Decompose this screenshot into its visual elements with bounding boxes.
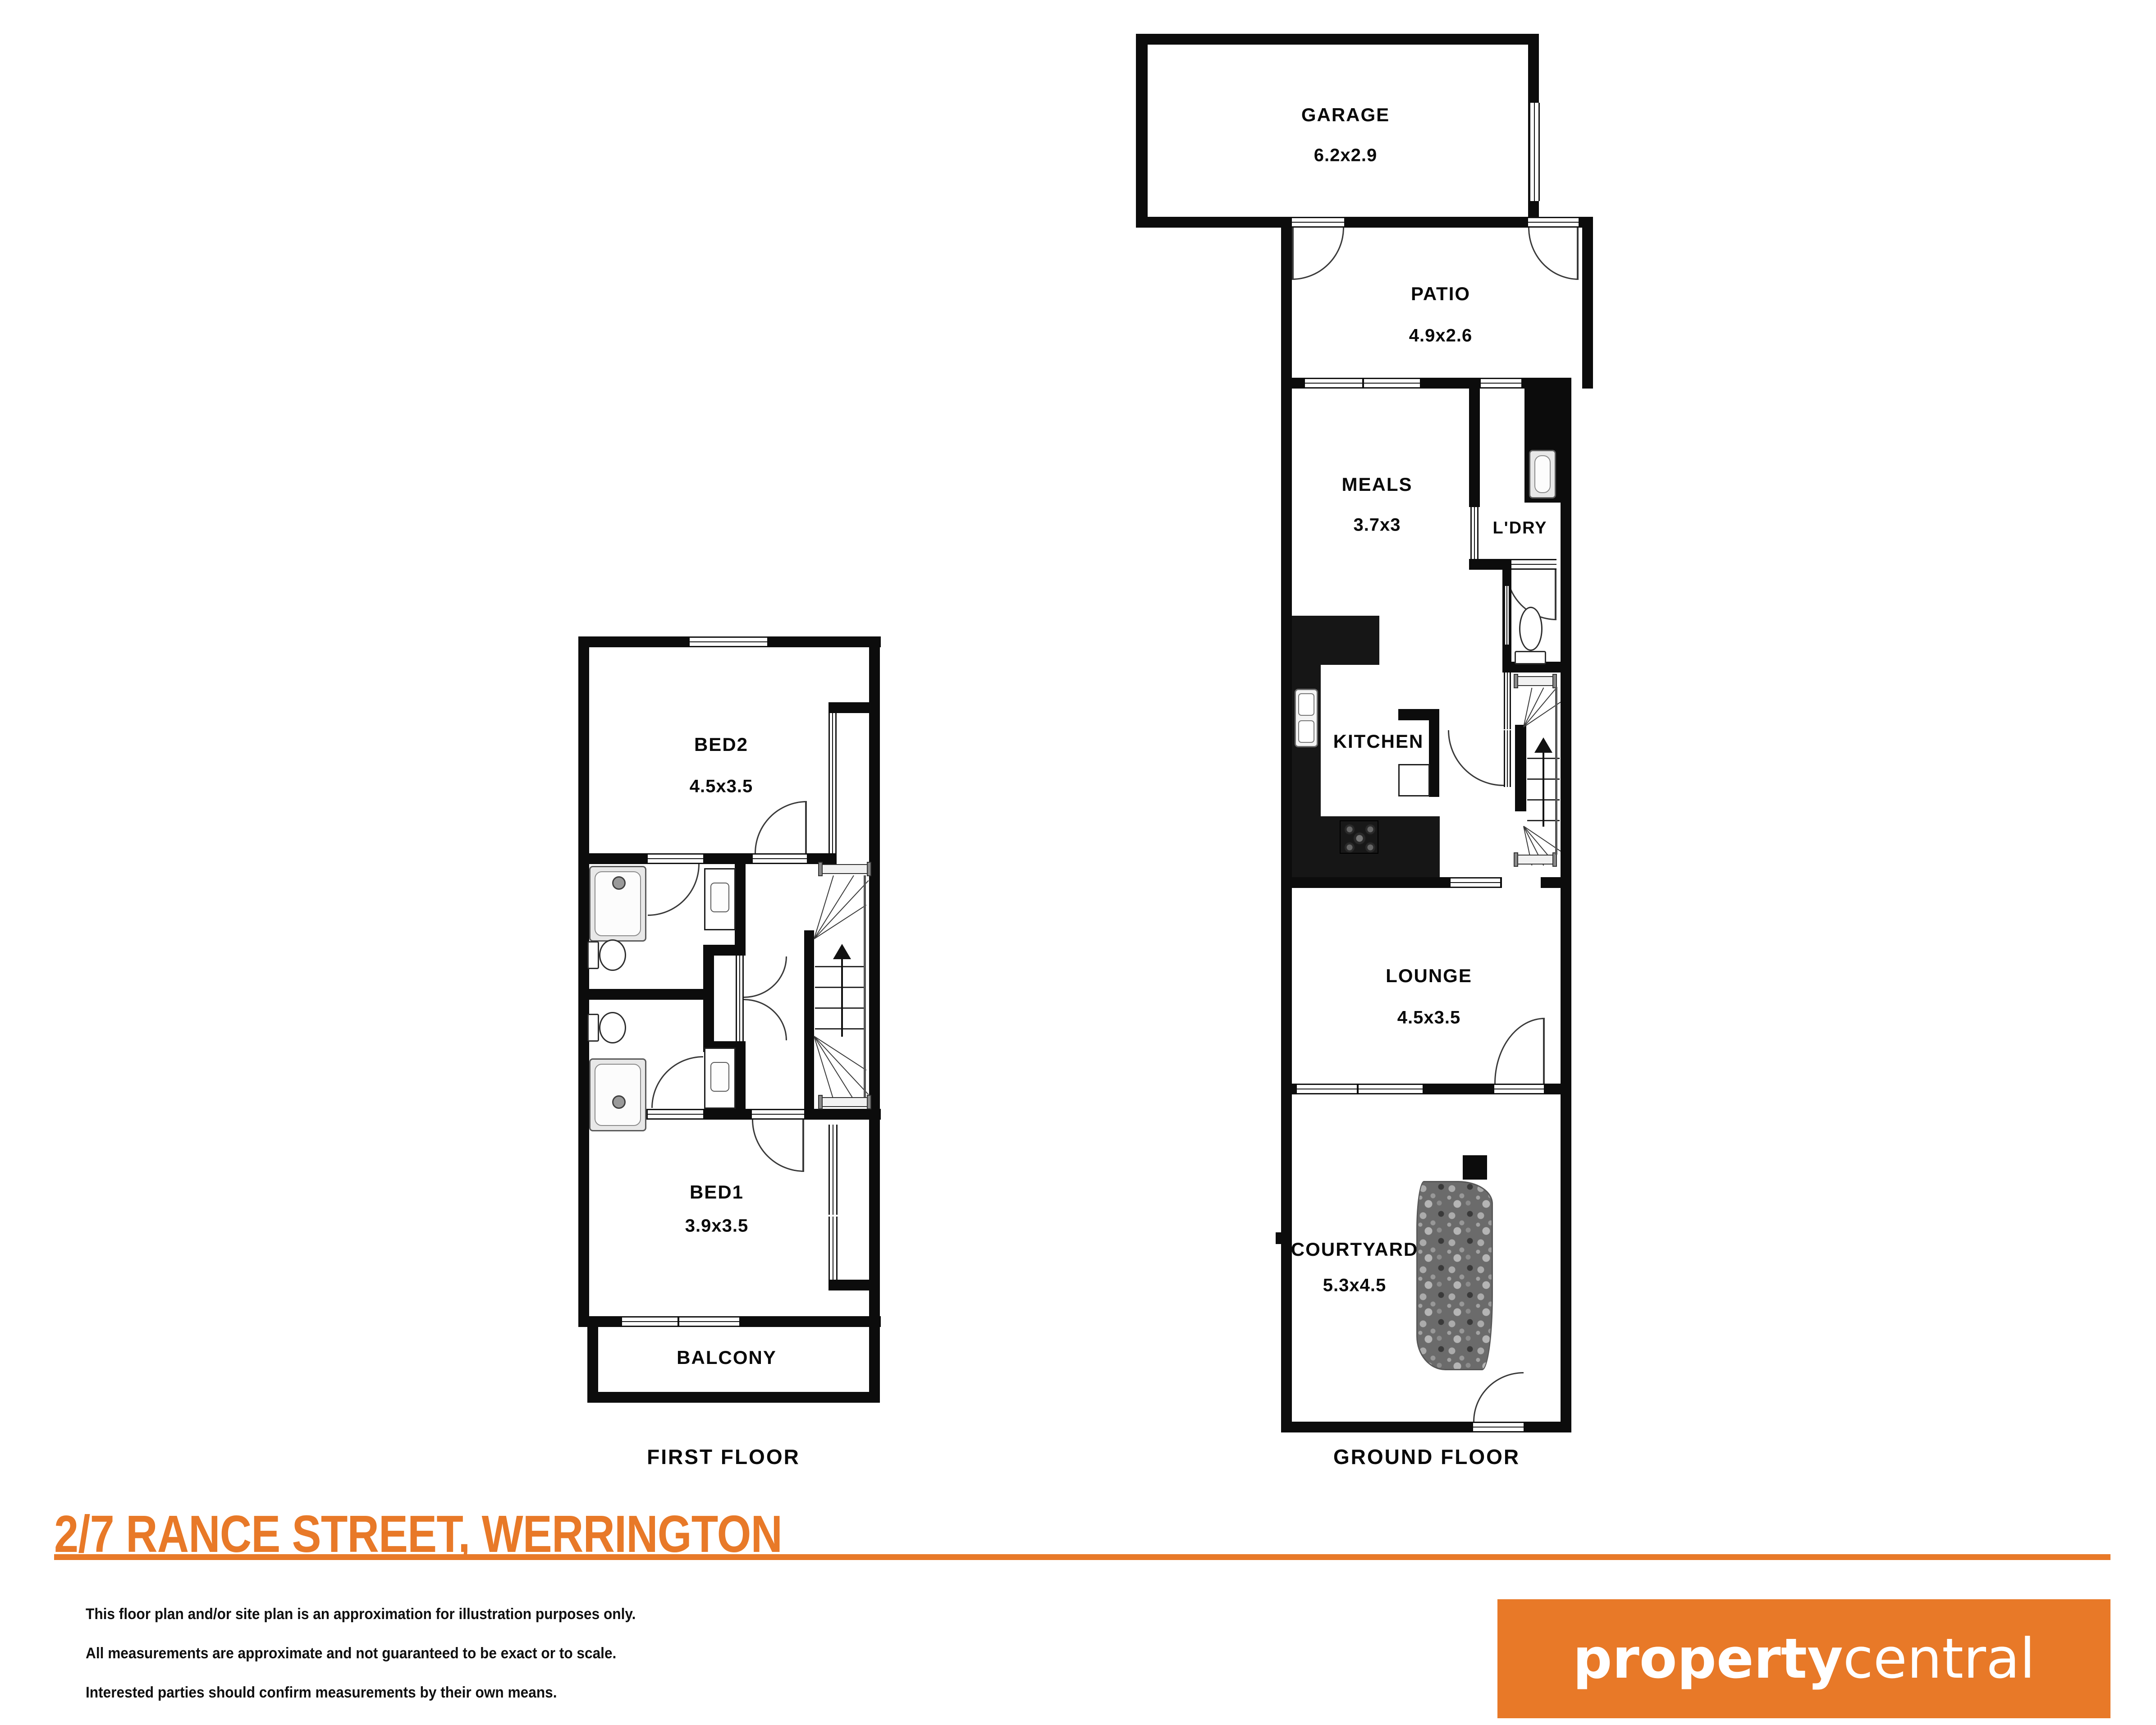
garden-bed [1416, 1181, 1493, 1370]
logo-word-light: central [1843, 1627, 2035, 1691]
toilet-icon [1515, 651, 1546, 664]
stair-balustrade [1555, 687, 1557, 855]
lounge-door-arc [1494, 1018, 1545, 1084]
door-threshold [1292, 217, 1344, 228]
wall [1136, 34, 1539, 45]
window [1451, 877, 1500, 888]
lounge-door-leaf [1543, 1018, 1545, 1084]
wall [1429, 720, 1439, 797]
room-label-lounge: LOUNGE [1386, 965, 1472, 987]
window [1297, 1084, 1357, 1094]
wall [1281, 1422, 1571, 1432]
room-dims-lounge: 4.5x3.5 [1397, 1008, 1460, 1028]
door-threshold [1528, 217, 1579, 228]
room-dims-meals: 3.7x3 [1353, 515, 1401, 535]
stair-landing-rail [1515, 676, 1555, 686]
ground-floor-plan: GARAGE 6.2x2.9 PATIO 4.9x2.6 MEALS 3.7x3… [0, 0, 2156, 1725]
rail-cap [1514, 674, 1518, 688]
door-threshold [1494, 1084, 1544, 1094]
room-label-kitchen: KITCHEN [1333, 731, 1424, 752]
cooktop-icon [1340, 820, 1378, 854]
wall [1136, 34, 1148, 228]
room-label-ldry: L'DRY [1492, 519, 1547, 538]
kitchen-sink-bowl [1298, 720, 1314, 743]
patio-door-arc [1528, 228, 1579, 280]
ground-floor-label: GROUND FLOOR [1333, 1445, 1520, 1469]
logo-word-bold: property [1573, 1627, 1843, 1691]
fence-post [1276, 1232, 1281, 1244]
room-dims-patio: 4.9x2.6 [1409, 326, 1472, 346]
laundry-tub-icon [1529, 450, 1556, 499]
room-label-garage: GARAGE [1301, 104, 1390, 126]
wall [1582, 217, 1593, 389]
entry-door-arc [1448, 730, 1504, 786]
courtyard-gate-arc [1473, 1372, 1524, 1422]
stairs-up-arrow-head [1534, 737, 1552, 753]
door-threshold [1473, 1422, 1524, 1432]
toilet-icon [1519, 607, 1543, 651]
garage-panel-door [1529, 103, 1540, 201]
kitchen-sink-bowl [1298, 693, 1314, 716]
accent-divider [54, 1554, 2110, 1560]
room-dims-garage: 6.2x2.9 [1314, 146, 1377, 166]
sidelight-window [1504, 673, 1511, 729]
appliance-icon [1398, 764, 1430, 796]
wall [1469, 559, 1511, 570]
laundry-tub-inner [1534, 455, 1551, 493]
rail-cap [1514, 852, 1518, 867]
door-threshold [1511, 559, 1556, 570]
stairs-up-arrow [1543, 752, 1544, 827]
property-central-logo: propertycentral [1497, 1599, 2110, 1718]
garage-door-leaf [1292, 228, 1294, 280]
wc-door-leaf [1555, 570, 1556, 620]
wall [1515, 725, 1526, 811]
wall [1136, 217, 1593, 228]
window [1481, 378, 1521, 389]
patio-door-leaf [1577, 228, 1579, 280]
window [1364, 378, 1420, 389]
room-label-courtyard: COURTYARD [1291, 1239, 1418, 1260]
room-label-meals: MEALS [1342, 474, 1413, 495]
cavity-slider [1470, 507, 1479, 559]
stair-landing-rail [1515, 855, 1555, 865]
wall [1398, 709, 1439, 720]
room-dims-courtyard: 5.3x4.5 [1323, 1276, 1386, 1296]
rail-cap [1552, 674, 1557, 688]
wall [1281, 378, 1292, 1432]
room-label-patio: PATIO [1411, 283, 1470, 305]
door-opening [1502, 877, 1541, 888]
window [1305, 378, 1362, 389]
floor-plan-page: { "colors": { "accent_orange": "#E87928"… [0, 0, 2156, 1725]
wall [1281, 228, 1292, 389]
courtyard-feature [1463, 1155, 1487, 1180]
disclaimer-line-2: All measurements are approximate and not… [86, 1645, 616, 1662]
wall [1469, 389, 1480, 507]
disclaimer-line-1: This floor plan and/or site plan is an a… [86, 1606, 636, 1623]
cavity-slider [1504, 586, 1510, 645]
wall [1561, 389, 1571, 1432]
stair-winder-line [1523, 687, 1544, 727]
disclaimer-line-3: Interested parties should confirm measur… [86, 1684, 557, 1702]
garage-door-arc [1292, 228, 1344, 280]
window [1359, 1084, 1423, 1094]
door-threshold [1504, 730, 1511, 787]
